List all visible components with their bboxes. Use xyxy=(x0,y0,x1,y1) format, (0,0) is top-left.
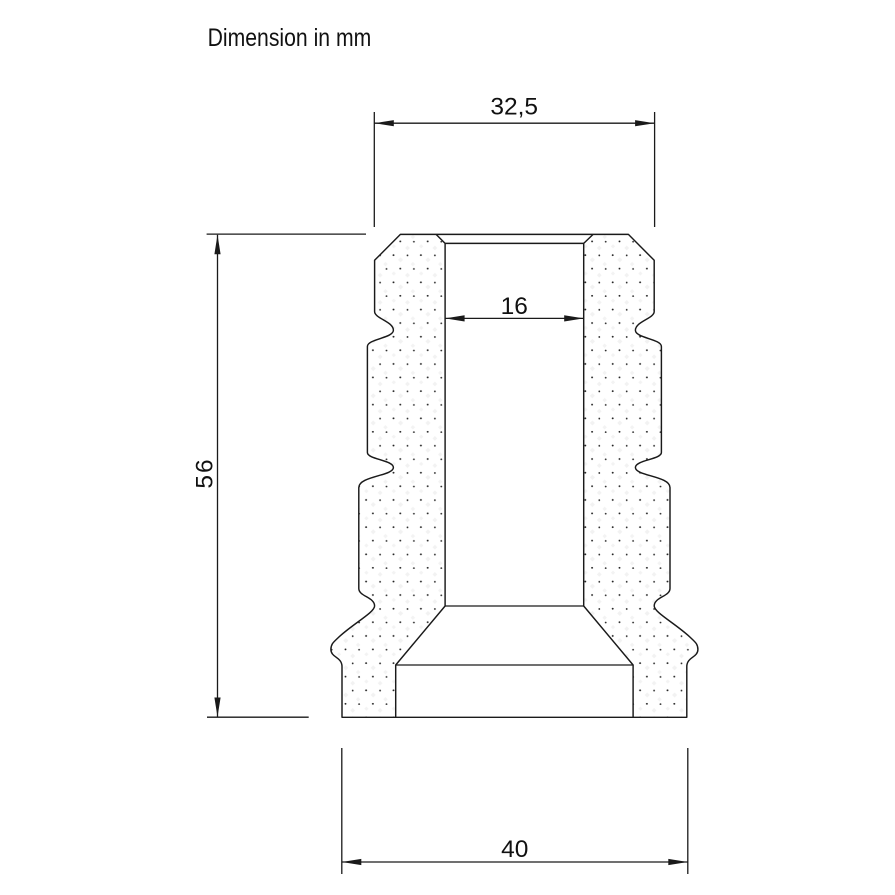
svg-text:32,5: 32,5 xyxy=(490,93,538,120)
svg-text:56: 56 xyxy=(192,457,219,488)
svg-text:Dimension in mm: Dimension in mm xyxy=(208,23,372,51)
svg-text:16: 16 xyxy=(501,293,528,320)
svg-text:40: 40 xyxy=(501,836,528,863)
